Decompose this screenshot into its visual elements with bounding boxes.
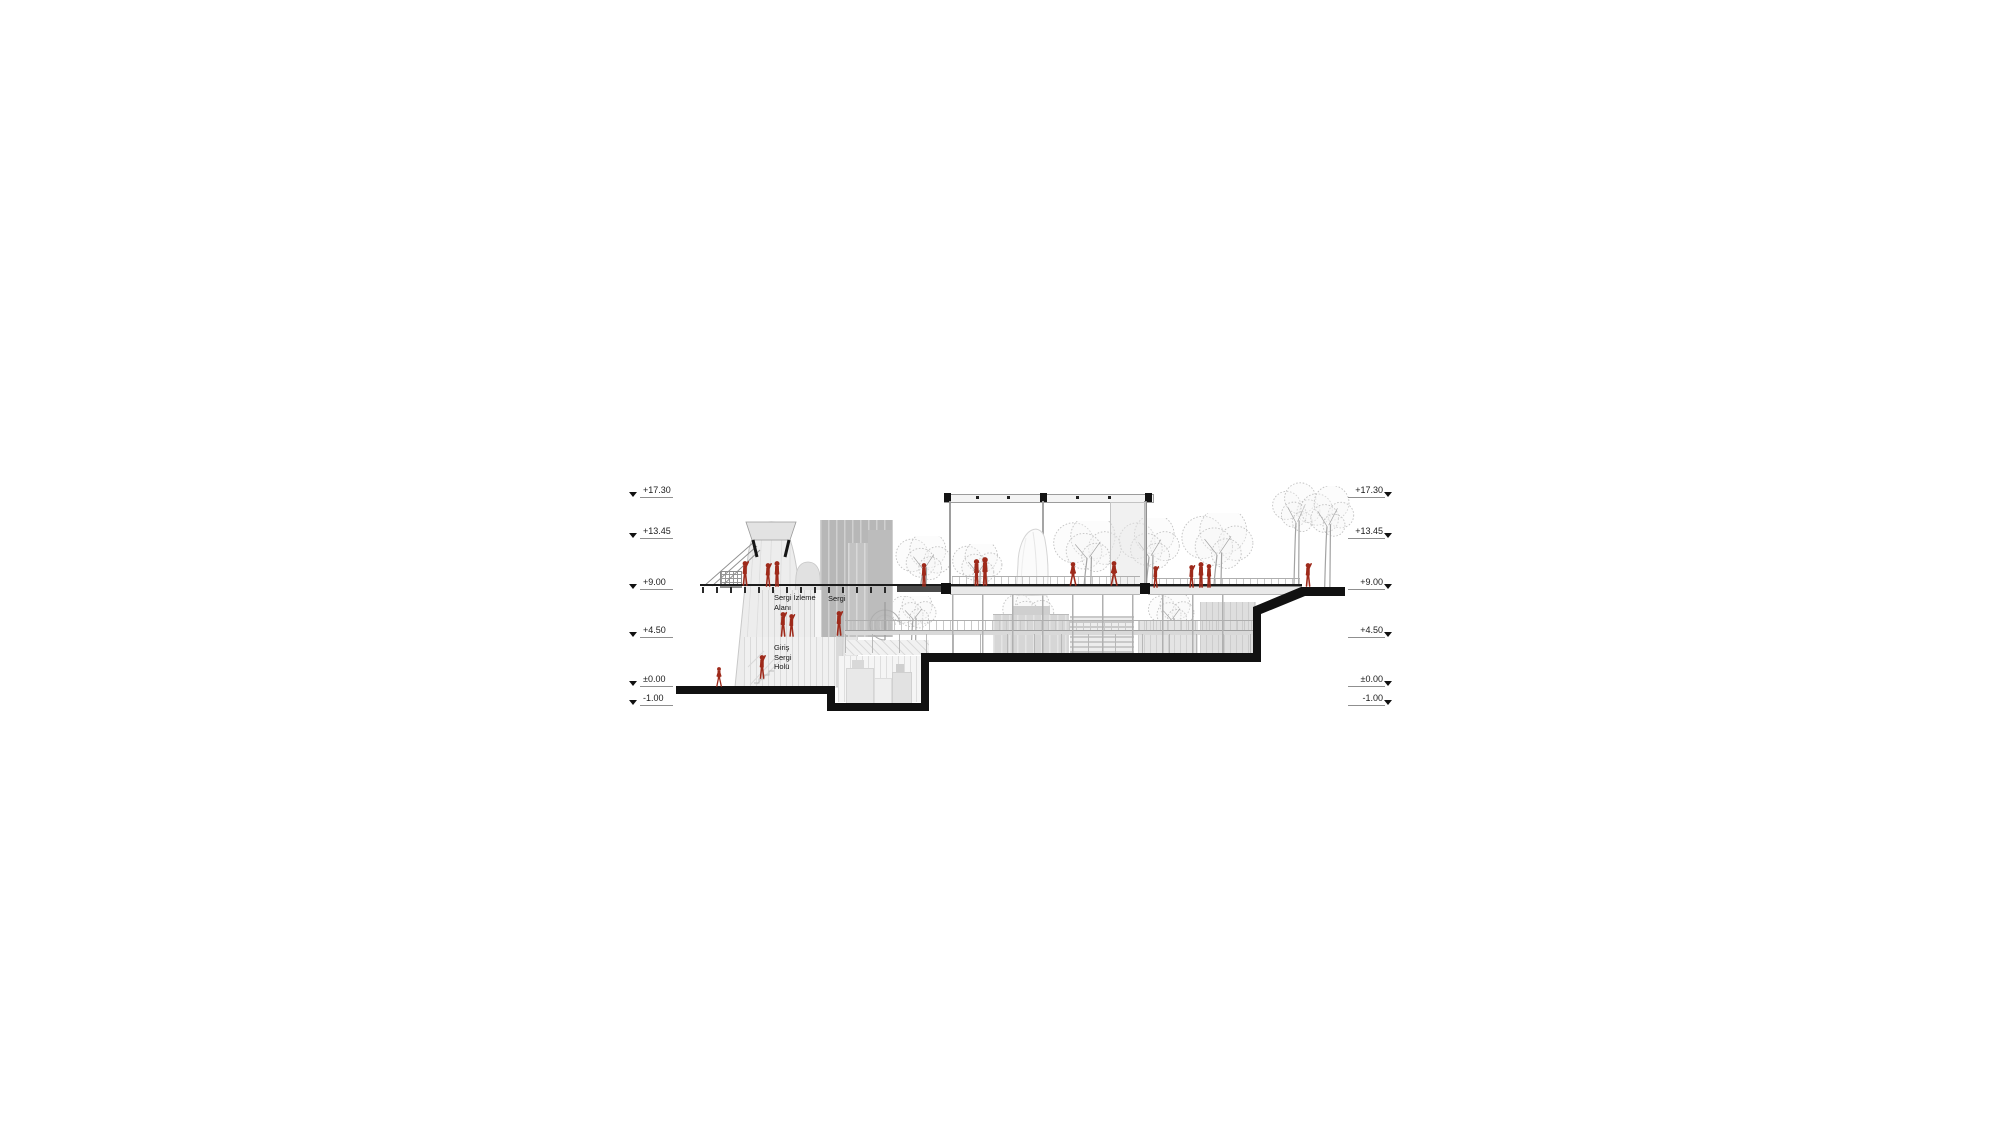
level-line-right (1348, 637, 1385, 638)
level-triangle-right (1384, 632, 1392, 637)
level-label-right: +9.00 (1346, 577, 1383, 588)
level-triangle-right (1384, 681, 1392, 686)
level-label-right: +4.50 (1346, 625, 1383, 636)
level-triangle-right (1384, 700, 1392, 705)
level-triangle-right (1384, 533, 1392, 538)
elevation-markers-right: +17.30+13.45+9.00+4.50±0.00-1.00 (0, 0, 2000, 1125)
level-triangle-right (1384, 584, 1392, 589)
level-triangle-right (1384, 492, 1392, 497)
level-label-right: +13.45 (1346, 526, 1383, 537)
level-label-right: -1.00 (1346, 693, 1383, 704)
level-line-right (1348, 686, 1385, 687)
level-line-right (1348, 589, 1385, 590)
section-drawing-canvas: Sergi İzleme Alanı Sergi Giriş Sergi Hol… (0, 0, 2000, 1125)
level-label-right: +17.30 (1346, 485, 1383, 496)
level-line-right (1348, 705, 1385, 706)
level-label-right: ±0.00 (1346, 674, 1383, 685)
level-line-right (1348, 497, 1385, 498)
level-line-right (1348, 538, 1385, 539)
